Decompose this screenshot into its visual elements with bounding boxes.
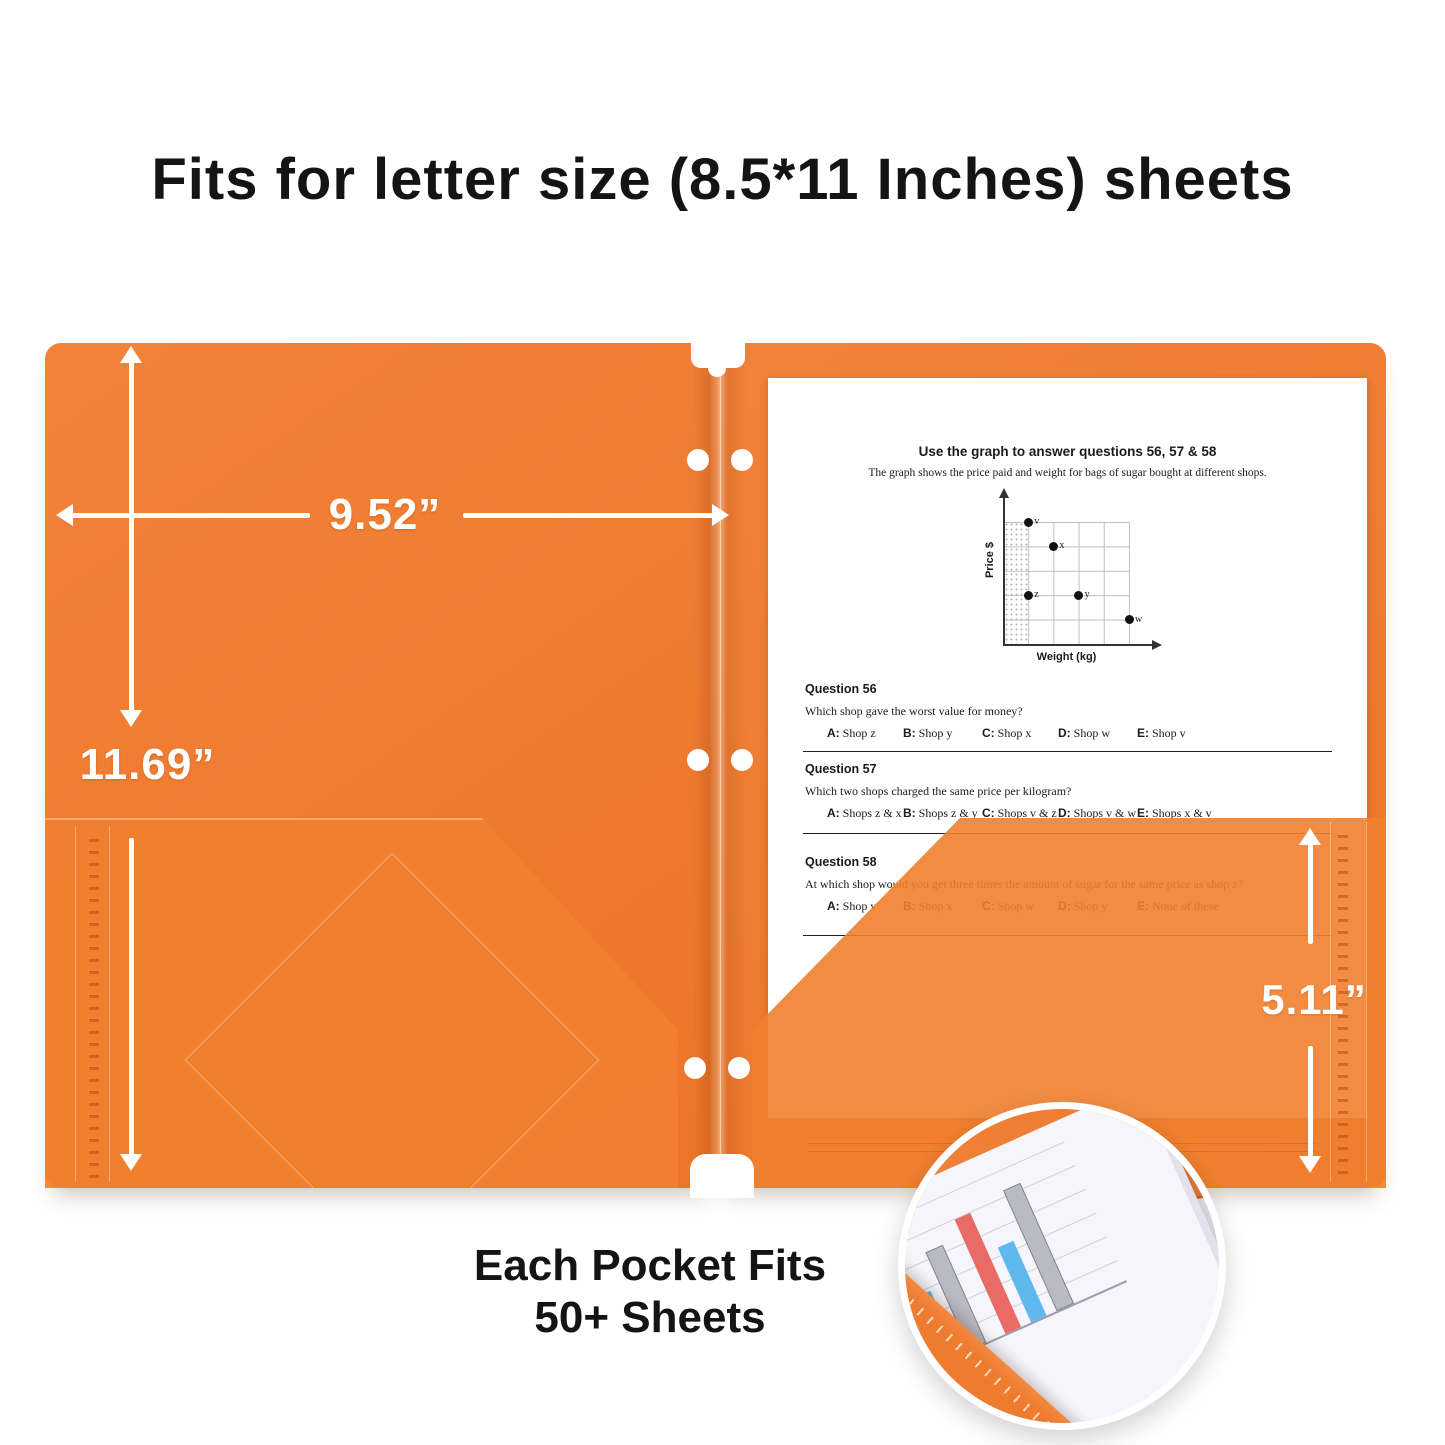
pocket-dimension-label: 5.11” — [1238, 976, 1390, 1024]
pocket-capacity-caption: Each Pocket Fits 50+ Sheets — [400, 1240, 900, 1344]
question-number: Question 56 — [805, 682, 877, 696]
spine-bottom-notch — [690, 1154, 754, 1198]
arrow-down-icon — [120, 710, 142, 727]
worksheet-heading: Use the graph to answer questions 56, 57… — [768, 444, 1367, 459]
x-axis-label: Weight (kg) — [1003, 651, 1130, 663]
question-text: Which shop gave the worst value for mone… — [805, 704, 1023, 719]
binder-hole — [687, 749, 709, 771]
binder-hole — [687, 449, 709, 471]
answer-option: E: Shop v — [1137, 726, 1186, 741]
arrow-up-icon — [1299, 828, 1321, 845]
arrow-down-icon — [1299, 1156, 1321, 1173]
data-point — [1024, 518, 1033, 527]
question-number: Question 57 — [805, 762, 877, 776]
x-axis-arrow-icon — [1152, 640, 1162, 650]
y-axis-label: Price $ — [984, 530, 996, 590]
spine-crease — [720, 345, 721, 1186]
data-point-label: w — [1135, 614, 1142, 625]
data-point — [1049, 542, 1058, 551]
headline: Fits for letter size (8.5*11 Inches) she… — [0, 146, 1445, 213]
binder-hole — [728, 1057, 750, 1079]
question-number: Question 58 — [805, 855, 877, 869]
data-point-label: v — [1034, 516, 1039, 527]
pocket-arrow-lower — [1308, 1046, 1313, 1158]
question-text: Which two shops charged the same price p… — [805, 784, 1071, 799]
answer-option: A: Shop z — [827, 726, 876, 741]
data-point-label: y — [1085, 589, 1090, 600]
arrow-left-icon — [56, 504, 73, 526]
width-arrow — [72, 513, 310, 518]
answer-option: B: Shop y — [903, 726, 952, 741]
data-point — [1024, 591, 1033, 600]
answer-option: D: Shop w — [1058, 726, 1110, 741]
pocket-arrow-upper — [1308, 842, 1313, 944]
data-point — [1125, 615, 1134, 624]
data-point — [1074, 591, 1083, 600]
left-pocket-stitch-strip — [89, 830, 99, 1180]
data-point-label: x — [1059, 540, 1064, 551]
plot-shaded-column — [1004, 522, 1028, 645]
height-dimension-label: 11.69” — [60, 740, 235, 790]
binder-hole — [731, 449, 753, 471]
width-dimension-label: 9.52” — [300, 490, 470, 540]
y-axis-arrow-icon — [999, 488, 1009, 498]
height-arrow-upper — [129, 360, 134, 712]
binder-hole — [684, 1057, 706, 1079]
product-image-canvas: Fits for letter size (8.5*11 Inches) she… — [0, 0, 1445, 1445]
answer-option: C: Shop x — [982, 726, 1031, 741]
height-arrow-lower — [129, 838, 134, 1156]
pocket-closeup-inset: Apr — [898, 1102, 1226, 1430]
answer-option: A: Shops z & x — [827, 806, 902, 821]
question-options: A: Shop zB: Shop yC: Shop xD: Shop wE: S… — [768, 726, 1367, 744]
pocket-diamond-emboss — [184, 852, 600, 1268]
arrow-right-icon — [712, 504, 729, 526]
scatter-plot-grid — [1003, 522, 1130, 645]
worksheet-description: The graph shows the price paid and weigh… — [768, 467, 1367, 479]
binder-hole — [731, 749, 753, 771]
arrow-down-icon — [120, 1154, 142, 1171]
data-point-label: z — [1034, 589, 1038, 600]
arrow-up-icon — [120, 346, 142, 363]
